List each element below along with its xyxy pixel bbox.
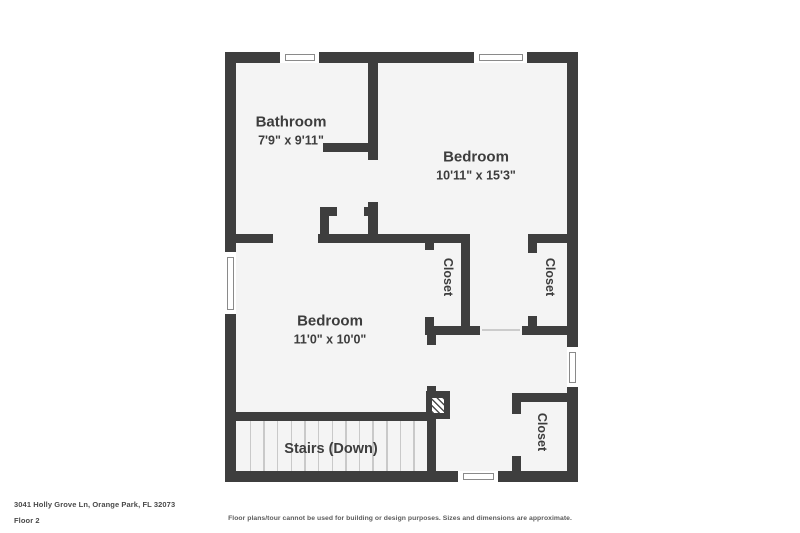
room-label-closet-hall: Closet xyxy=(543,258,557,296)
room-dimensions: 10'11" x 15'3" xyxy=(436,167,516,183)
wall-stairs-right xyxy=(427,421,436,471)
wall-closet-hall-jamb-top xyxy=(528,243,537,253)
room-label-bedroom-left: Bedroom 11'0" x 10'0" xyxy=(294,313,367,348)
wall-mid-right xyxy=(528,234,567,243)
room-name: Bedroom xyxy=(436,149,516,168)
wall-closet-hall-jamb-bottom xyxy=(528,316,537,326)
window-pane xyxy=(569,352,575,383)
window-hall-right xyxy=(567,347,578,387)
wall-bedroom-right-jamb-top xyxy=(427,335,436,345)
room-label-bathroom: Bathroom 7'9" x 9'11" xyxy=(256,114,327,149)
disclaimer-text: Floor plans/tour cannot be used for buil… xyxy=(228,515,572,522)
window-bottom xyxy=(458,471,498,482)
wall-hall-bottom-right xyxy=(522,326,567,335)
room-dimensions: 11'0" x 10'0" xyxy=(294,331,367,347)
address-text: 3041 Holly Grove Ln, Orange Park, FL 320… xyxy=(14,500,175,509)
shaft-hatch-icon xyxy=(431,397,445,414)
stairs-label: Stairs (Down) xyxy=(284,441,377,457)
wall-niche-top-left xyxy=(320,207,337,216)
window-pane xyxy=(227,257,233,310)
room-name: Bedroom xyxy=(294,313,367,332)
floorplan-page: Bathroom 7'9" x 9'11" Bedroom 10'11" x 1… xyxy=(0,0,800,533)
wall-niche-top-right xyxy=(364,207,378,216)
wall-exterior-right xyxy=(567,52,578,482)
wall-closet-bottom-jamb-top xyxy=(512,393,521,414)
wall-bathroom-stub xyxy=(323,143,368,152)
wall-mid-left xyxy=(236,234,273,243)
shaft-box xyxy=(426,391,450,419)
wall-closet-bottom-jamb-bottom xyxy=(512,456,521,471)
wall-bathroom-divider-upper xyxy=(368,63,378,160)
window-bedroom-top xyxy=(474,52,527,63)
wall-stairs-top xyxy=(236,412,436,421)
window-bathroom xyxy=(280,52,319,63)
room-label-bedroom-top: Bedroom 10'11" x 15'3" xyxy=(436,149,516,184)
door-threshold xyxy=(482,329,520,331)
wall-hall-bottom-left xyxy=(425,326,480,335)
room-label-closet-bottom: Closet xyxy=(535,413,549,451)
floor-number-text: Floor 2 xyxy=(14,516,40,525)
window-pane xyxy=(463,473,494,479)
room-name: Bathroom xyxy=(256,114,327,133)
room-label-closet-left: Closet xyxy=(441,258,455,296)
room-dimensions: 7'9" x 9'11" xyxy=(256,132,327,148)
wall-closet-left-jamb-top xyxy=(425,234,434,250)
wall-closet-left-right-side xyxy=(461,243,470,335)
window-pane xyxy=(479,54,523,60)
window-bedroom-left xyxy=(225,252,236,314)
wall-mid-center xyxy=(318,234,470,243)
wall-exterior-bottom xyxy=(225,471,578,482)
window-pane xyxy=(285,54,315,60)
